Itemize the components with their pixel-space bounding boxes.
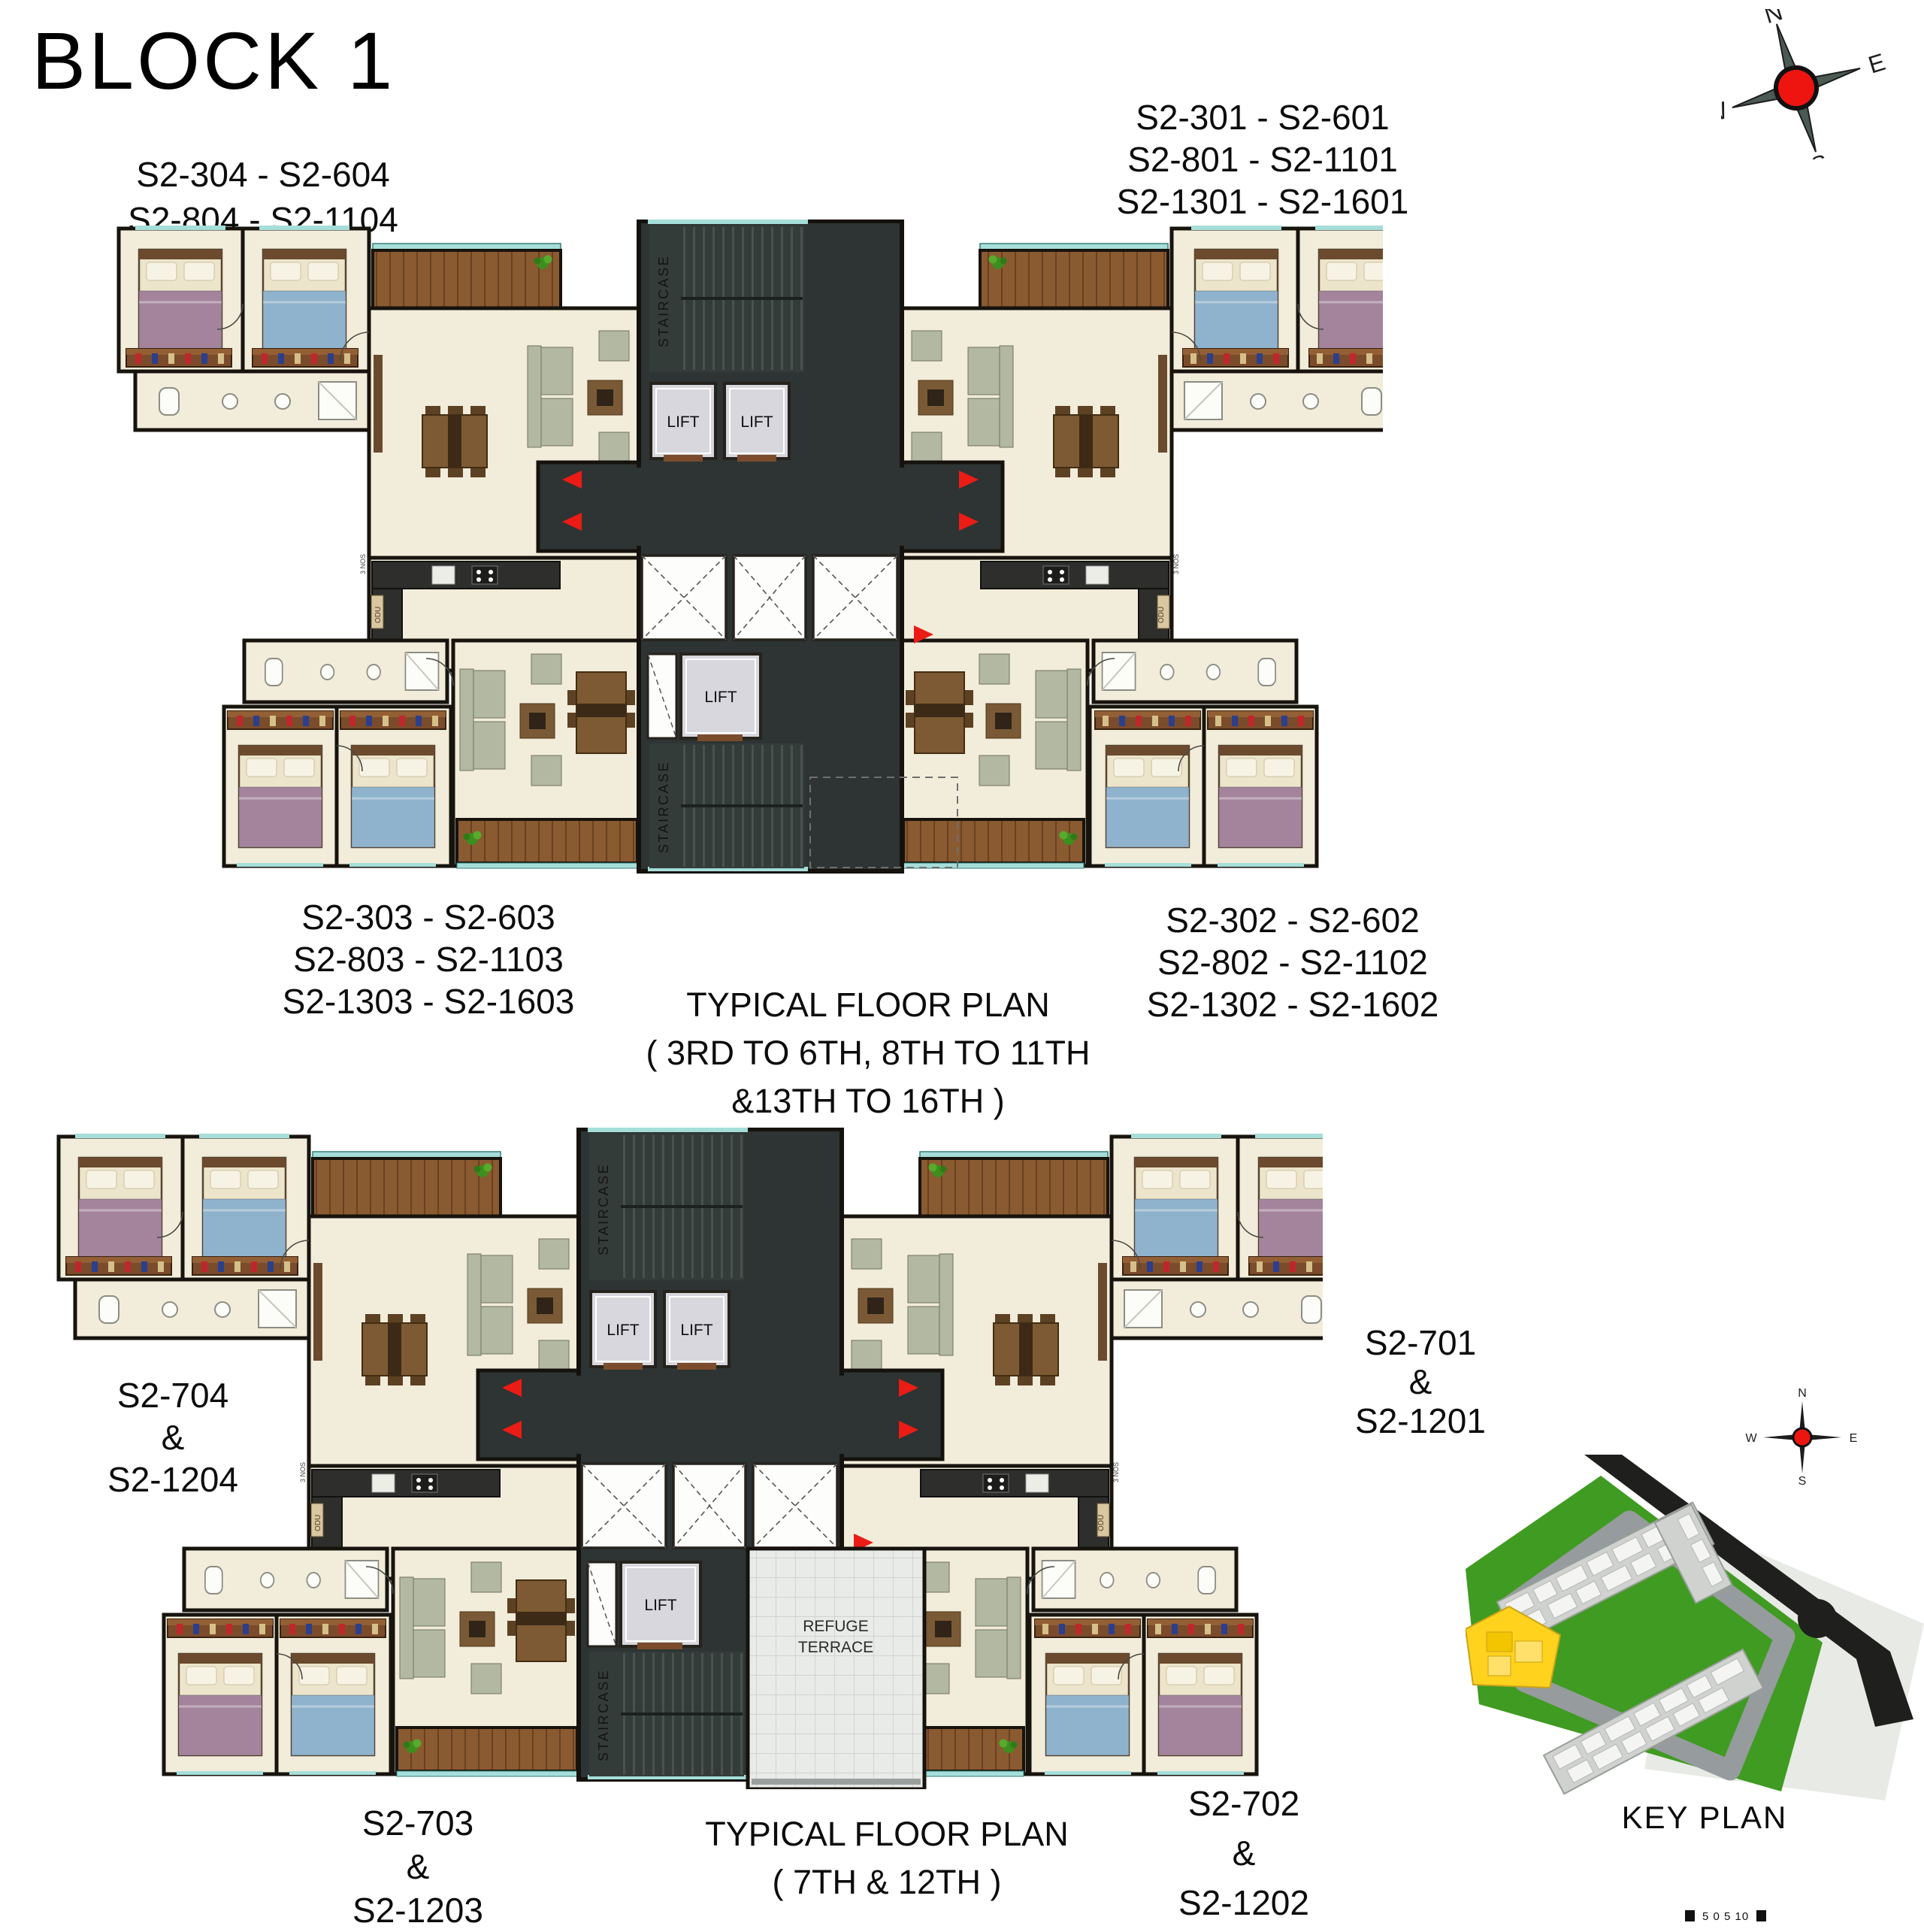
lift-label: LIFT [704, 689, 737, 706]
compass-n: N [1761, 9, 1786, 29]
nos-label: 3 NOS [359, 554, 367, 574]
unit-range: S2-802 - S2-1102 [1101, 941, 1484, 983]
odu-label: ODU [1097, 1515, 1106, 1531]
unit-range: S2-301 - S2-601 [1071, 96, 1454, 138]
scale-bar-box [1756, 1910, 1766, 1921]
nos-label: 3 NOS [1172, 554, 1180, 574]
odu-label: ODU [314, 1515, 322, 1531]
staircase-label: STAIRCASE [656, 761, 671, 853]
plan1-caption: TYPICAL FLOOR PLAN ( 3RD TO 6TH, 8TH TO … [594, 981, 1142, 1125]
unit-range: S2-303 - S2-603 [237, 896, 620, 938]
unit-range: S2-801 - S2-1101 [1071, 138, 1454, 180]
plan2-caption: TYPICAL FLOOR PLAN ( 7TH & 12TH ) [620, 1810, 1154, 1906]
odu-label: ODU [374, 607, 383, 623]
scale-bar: 5 0 5 10 [1685, 1910, 1766, 1923]
compass-n: N [1798, 1388, 1807, 1400]
plan2-caption-line2: ( 7TH & 12TH ) [620, 1858, 1154, 1906]
unit-range: S2-803 - S2-1103 [237, 938, 620, 980]
key-plan-compass: N S W E [1742, 1388, 1862, 1485]
unit-range: S2-1302 - S2-1602 [1101, 983, 1484, 1025]
lift-label: LIFT [740, 413, 773, 431]
block1-floor-plan-sheet: { "title": "BLOCK 1", "compass": { "n": … [0, 0, 1924, 1924]
plan1-caption-line1: TYPICAL FLOOR PLAN [594, 981, 1142, 1029]
plan1-label-bottom-left: S2-303 - S2-603 S2-803 - S2-1103 S2-1303… [237, 896, 620, 1022]
plan1-label-bottom-right: S2-302 - S2-602 S2-802 - S2-1102 S2-1302… [1101, 899, 1484, 1025]
lift-label: LIFT [667, 413, 699, 431]
plan1-caption-line2: ( 3RD TO 6TH, 8TH TO 11TH &13TH TO 16TH … [594, 1029, 1142, 1125]
unit-range: S2-304 - S2-604 [71, 152, 455, 197]
unit-range: S2-302 - S2-602 [1101, 899, 1484, 941]
refuge-terrace-label: TERRACE [798, 1639, 873, 1656]
compass-e: E [1850, 1432, 1858, 1445]
page-title: BLOCK 1 [32, 14, 395, 108]
nos-label: 3 NOS [299, 1462, 307, 1482]
compass-e: E [1865, 48, 1889, 79]
scale-bar-ticks: 5 0 5 10 [1702, 1910, 1749, 1923]
nos-label: 3 NOS [1112, 1462, 1120, 1482]
key-plan-map [1466, 1455, 1924, 1800]
key-plan-title: KEY PLAN [1562, 1800, 1847, 1836]
lift-label: LIFT [644, 1597, 676, 1614]
lift-label: LIFT [680, 1322, 712, 1339]
odu-label: ODU [1157, 607, 1166, 623]
plan2-label-bottom-left: S2-703 & S2-1203 [253, 1801, 583, 1932]
compass-w: W [1745, 1432, 1757, 1445]
floor-plan-typical-3-16: STAIRCASE STAIRCASE LIFT LIFT LIFT ODU O… [113, 220, 1383, 881]
plan2-caption-line1: TYPICAL FLOOR PLAN [620, 1810, 1154, 1858]
plan1-label-top-right: S2-301 - S2-601 S2-801 - S2-1101 S2-1301… [1071, 96, 1454, 223]
scale-bar-box [1685, 1910, 1695, 1921]
floor-plan-typical-7-12: STAIRCASE STAIRCASE LIFT LIFT LIFT REFUG… [53, 1128, 1323, 1789]
staircase-label: STAIRCASE [596, 1163, 611, 1255]
unit-range: S2-1303 - S2-1603 [237, 980, 620, 1022]
staircase-label: STAIRCASE [596, 1669, 611, 1761]
unit-range: & [253, 1845, 583, 1888]
unit-range: S2-1203 [253, 1888, 583, 1932]
compass-s: S [1798, 1475, 1807, 1485]
unit-range: S2-703 [253, 1801, 583, 1845]
unit-range: S2-1301 - S2-1601 [1071, 180, 1454, 223]
compass-s: S [1808, 149, 1832, 159]
refuge-terrace-label: REFUGE [803, 1618, 869, 1635]
lift-label: LIFT [607, 1322, 639, 1339]
staircase-label: STAIRCASE [656, 255, 671, 347]
compass-rose: N S E W [1721, 9, 1894, 159]
compass-w: W [1721, 96, 1731, 129]
